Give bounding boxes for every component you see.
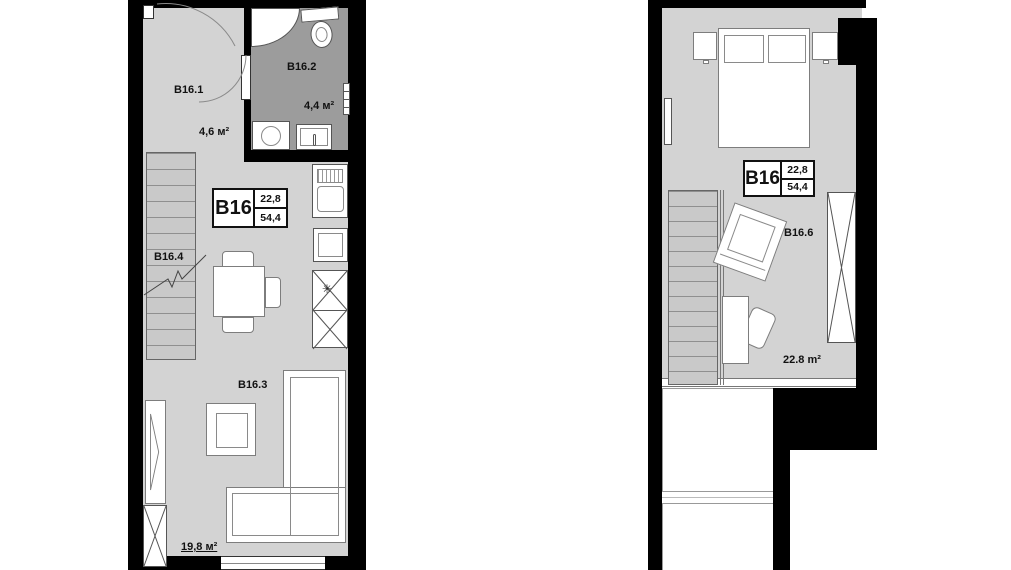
- dining-chair-bottom: [222, 317, 254, 333]
- wall-left: [648, 0, 662, 570]
- wardrobe-x-mark: [828, 193, 855, 342]
- toilet: [298, 4, 344, 51]
- radiator: [664, 98, 672, 145]
- faucet: [313, 134, 316, 146]
- wall-below-horizontal: [773, 388, 877, 450]
- living-room-label: B16.3: [238, 379, 267, 391]
- wall-bottom-left: [128, 556, 221, 570]
- living-room-window: [221, 556, 325, 570]
- second-floor-plan: B16 22,8 54,4 B16.6 22.8 m²: [648, 0, 877, 570]
- wall-bottom-right: [325, 556, 366, 570]
- armchair-cushion: [727, 214, 776, 263]
- nightstand-right: [812, 32, 838, 60]
- dining-table: [213, 266, 265, 317]
- roof-terrace-upper: [662, 388, 775, 492]
- unit-info-box-floor1: B16 22,8 54,4: [212, 188, 288, 228]
- coffee-table-top: [216, 413, 248, 448]
- bathroom-label: B16.2: [287, 61, 316, 73]
- tv-icon: [146, 401, 165, 503]
- hallway-label: B16.1: [174, 84, 203, 96]
- unit-name: B16: [214, 190, 253, 226]
- fridge-cabinet: ✳: [312, 270, 348, 348]
- wall-top: [648, 0, 866, 8]
- bathroom-wall-horizontal: [244, 150, 366, 162]
- bathroom-wall-lower: [244, 100, 251, 152]
- entrance-door-arc: [143, 0, 239, 50]
- nightstand-knob: [823, 60, 829, 64]
- pillow-left: [724, 35, 764, 63]
- towel-radiator-rungs: [344, 84, 349, 114]
- towel-radiator: [343, 83, 350, 115]
- roof-terrace-lower: [662, 503, 775, 570]
- wardrobe-x-mark: [144, 506, 166, 566]
- toilet-bowl-inner: [315, 26, 328, 42]
- wall-right: [348, 0, 366, 570]
- bedroom-area: 22.8 m²: [783, 354, 821, 366]
- unit-area-total: 54,4: [782, 180, 813, 196]
- desk: [722, 296, 749, 364]
- bedroom-label: B16.6: [784, 227, 813, 239]
- floorplan-canvas: B16.4 B16 22,8 54,4: [0, 0, 1011, 570]
- unit-area-upper: 22,8: [782, 162, 813, 180]
- unit-area-upper: 22,8: [255, 190, 286, 209]
- window-glass-line: [221, 563, 325, 564]
- wardrobe-floor1: [143, 505, 167, 567]
- unit-areas: 22,8 54,4: [253, 190, 286, 226]
- sofa-seat-bottom: [232, 493, 339, 536]
- dining-chair-right: [265, 277, 281, 308]
- bathroom-door-arc: [196, 52, 251, 104]
- double-bed: [718, 28, 810, 148]
- stove-top: [318, 233, 343, 257]
- unit-name: B16: [745, 162, 780, 195]
- wall-left: [128, 0, 143, 570]
- bathroom-wall-upper: [244, 0, 251, 55]
- wall-right: [856, 18, 877, 390]
- first-floor-plan: B16.4 B16 22,8 54,4: [128, 0, 366, 570]
- dining-chair-top: [222, 251, 254, 267]
- kitchen-sink-basin: [317, 186, 344, 212]
- drainboard: [317, 169, 343, 183]
- bathroom-area: 4,4 м²: [304, 100, 334, 112]
- pillow-right: [768, 35, 806, 63]
- stove: [313, 228, 348, 262]
- unit-areas: 22,8 54,4: [780, 162, 813, 195]
- tv-unit: [145, 400, 166, 504]
- terrace-divider-line: [662, 497, 775, 498]
- bathroom-sink: [296, 124, 332, 150]
- nightstand-knob: [703, 60, 709, 64]
- kitchen-sink-unit: [312, 164, 348, 218]
- snowflake-icon: ✳: [322, 282, 332, 296]
- unit-info-box-floor2: B16 22,8 54,4: [743, 160, 815, 197]
- hallway-area: 4,6 м²: [199, 126, 229, 138]
- wardrobe-floor2: [827, 192, 856, 343]
- nightstand-left: [693, 32, 717, 60]
- washing-machine-drum: [261, 126, 281, 146]
- unit-area-total: 54,4: [255, 209, 286, 226]
- washing-machine: [252, 121, 290, 150]
- coffee-table: [206, 403, 256, 456]
- living-room-area: 19,8 м²: [181, 541, 217, 553]
- stairs-label: B16.4: [154, 251, 183, 263]
- wall-below-vertical: [773, 450, 790, 570]
- staircase-floor2: [668, 190, 718, 385]
- toilet-bowl: [309, 20, 333, 49]
- cabinet-x-mark: [313, 310, 347, 349]
- floor2-top-sliver: [662, 8, 862, 18]
